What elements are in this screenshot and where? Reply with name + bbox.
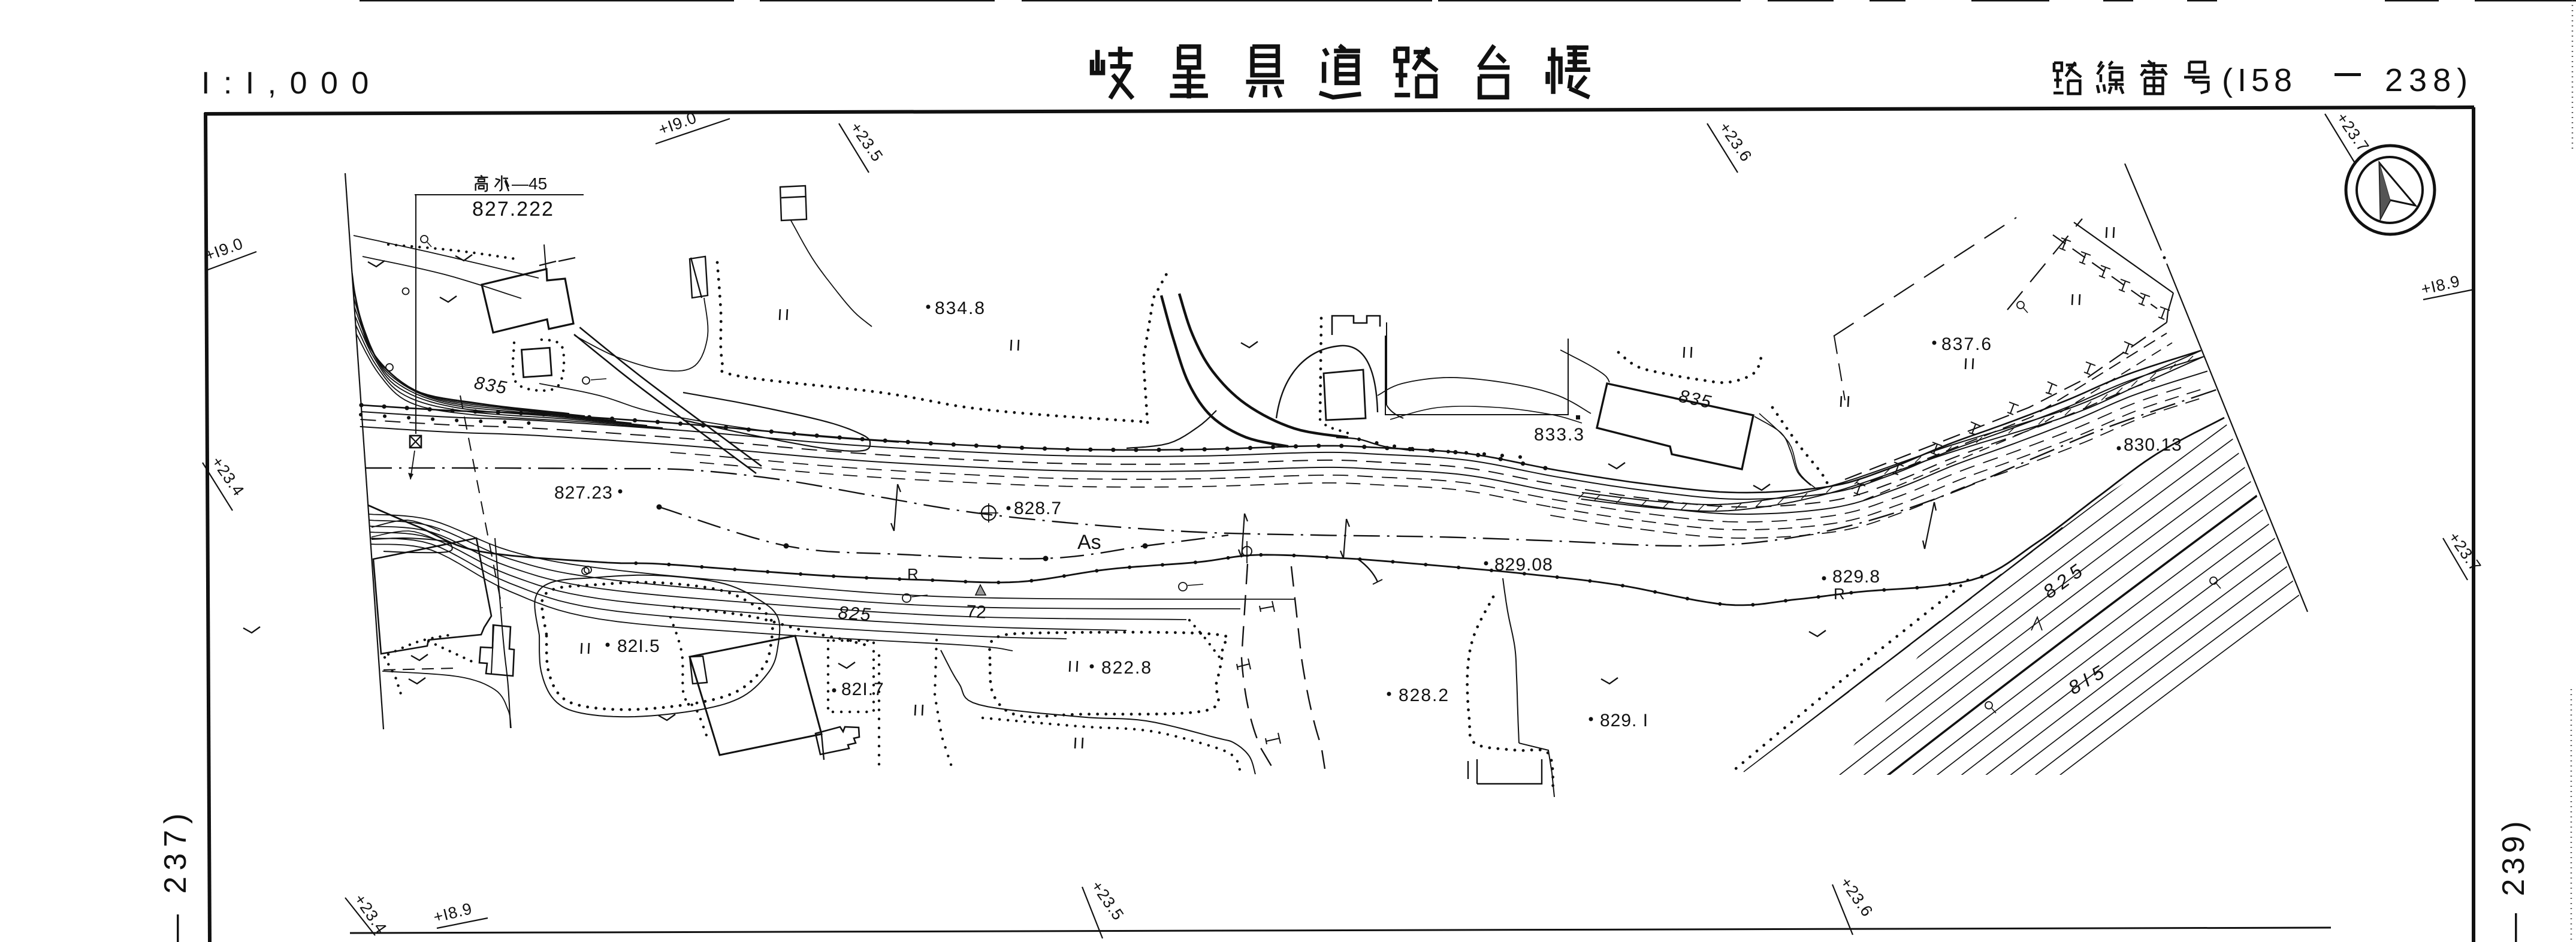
svg-text:834.8: 834.8: [935, 298, 986, 318]
svg-text:82I.5: 82I.5: [617, 636, 660, 656]
svg-text:829. I: 829. I: [1600, 711, 1648, 730]
svg-text:827.23: 827.23: [554, 483, 613, 503]
svg-text:R: R: [907, 565, 919, 583]
svg-text:828.2: 828.2: [1399, 686, 1449, 705]
svg-text:833.3: 833.3: [1534, 425, 1585, 445]
svg-text:828.7: 828.7: [1014, 499, 1062, 518]
svg-text:829.8: 829.8: [1832, 567, 1880, 587]
svg-text:830.13: 830.13: [2124, 435, 2182, 455]
svg-text:— 239): — 239): [2496, 817, 2531, 942]
svg-text:I : I , 0 0 0: I : I , 0 0 0: [201, 66, 371, 101]
svg-text:837.6: 837.6: [1941, 334, 1992, 354]
svg-text:R: R: [1834, 585, 1845, 603]
svg-text:(I58: (I58: [2222, 62, 2297, 98]
svg-text:As: As: [1077, 531, 1101, 554]
svg-text:822.8: 822.8: [1101, 658, 1152, 678]
svg-text:— 237): — 237): [158, 807, 193, 942]
svg-text:829.08: 829.08: [1494, 555, 1553, 575]
svg-text:238): 238): [2385, 62, 2474, 98]
svg-text:72: 72: [966, 602, 987, 623]
svg-text:827.222: 827.222: [472, 198, 554, 221]
svg-text:825: 825: [838, 603, 872, 625]
svg-text:—45: —45: [512, 174, 547, 193]
